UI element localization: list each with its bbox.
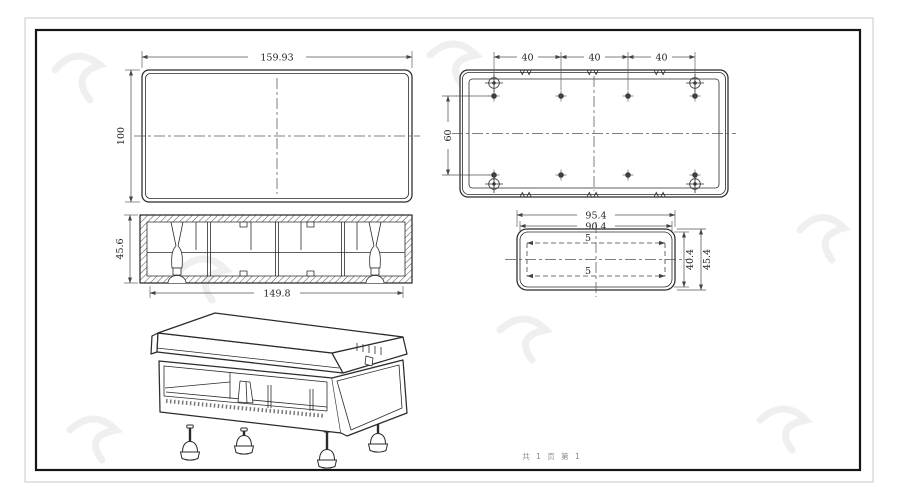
svg-text:90.4: 90.4 <box>585 222 606 233</box>
front-view: 159.93 100 <box>116 51 420 202</box>
isometric-exploded-view <box>151 313 407 468</box>
drawing-sheet: 共 1 页 第 1 159.93 100 <box>0 0 900 500</box>
svg-text:40: 40 <box>655 53 667 64</box>
svg-text:159.93: 159.93 <box>260 53 293 64</box>
rubber-feet <box>181 434 388 469</box>
svg-text:60: 60 <box>443 129 454 141</box>
dim-top-wall: 5 <box>585 233 591 244</box>
section-view: 45.6 149.8 <box>115 215 412 300</box>
svg-text:40.4: 40.4 <box>685 249 696 270</box>
dim-bottom-wall: 5 <box>585 266 591 277</box>
bottom-view: 40 40 40 60 <box>442 52 736 197</box>
dim-section-width: 149.8 <box>150 286 403 300</box>
svg-text:45.4: 45.4 <box>702 249 713 270</box>
svg-text:40: 40 <box>588 53 600 64</box>
svg-text:95.4: 95.4 <box>585 211 606 222</box>
base-half <box>159 360 407 436</box>
dim-end-inner-height: 40.4 <box>674 232 696 287</box>
sheet-footer-text: 共 1 页 第 1 <box>522 451 582 461</box>
svg-text:45.6: 45.6 <box>115 238 126 259</box>
dim-front-width: 159.93 <box>142 51 412 68</box>
svg-text:40: 40 <box>521 53 533 64</box>
dim-section-height: 45.6 <box>115 215 138 283</box>
end-view: 95.4 90.4 5 5 40.4 45.4 <box>505 210 713 297</box>
svg-text:149.8: 149.8 <box>263 289 290 300</box>
drawing-canvas: 共 1 页 第 1 159.93 100 <box>0 0 900 500</box>
svg-text:100: 100 <box>116 127 127 145</box>
